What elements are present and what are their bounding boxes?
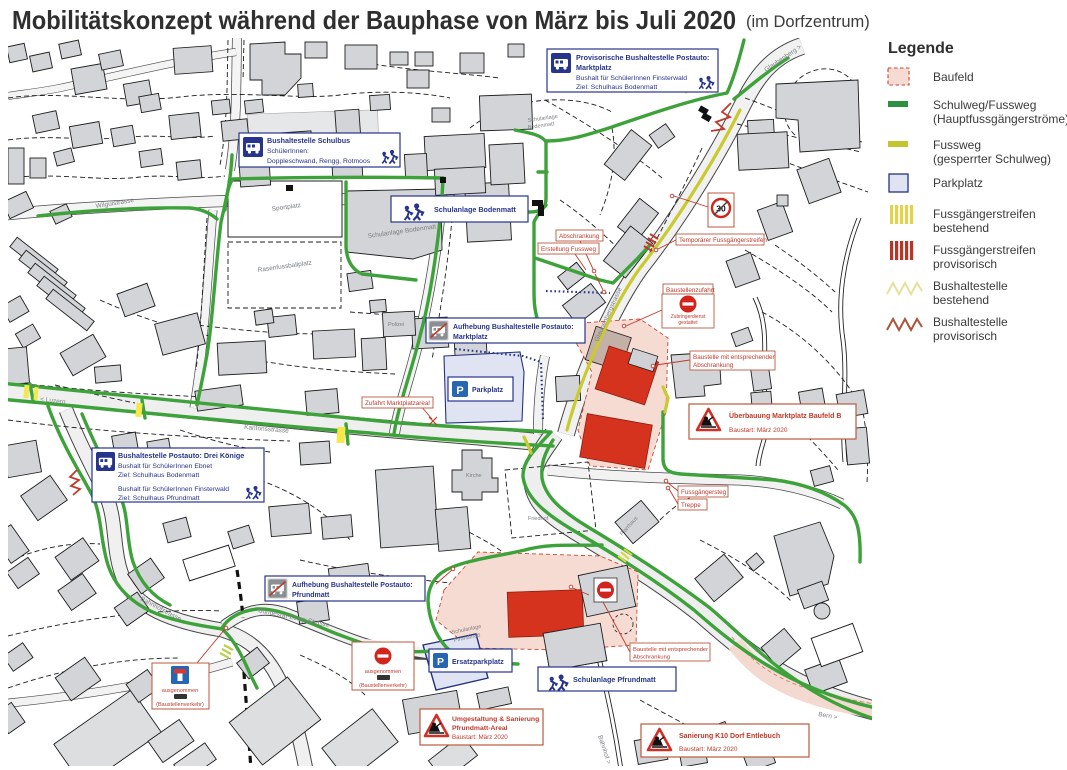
svg-text:Fussgängerstreifen: Fussgängerstreifen (933, 243, 1036, 257)
svg-text:Abschrankung: Abschrankung (633, 655, 670, 661)
svg-text:Schulweg/Fussweg: Schulweg/Fussweg (933, 98, 1036, 112)
svg-text:Ziel: Schulhaus Pfrundmatt: Ziel: Schulhaus Pfrundmatt (118, 495, 200, 502)
svg-text:Kirche: Kirche (466, 473, 482, 479)
svg-text:Pfrundmatt: Pfrundmatt (292, 592, 330, 599)
svg-text:Friedhof: Friedhof (528, 516, 549, 522)
svg-text:Ersatzparkplatz: Ersatzparkplatz (452, 659, 504, 666)
svg-text:Marktplatz: Marktplatz (576, 63, 612, 72)
svg-text:gestattet: gestattet (678, 320, 698, 326)
svg-text:ausgenommen: ausgenommen (365, 669, 401, 675)
svg-text:Erstellung Fussweg: Erstellung Fussweg (541, 246, 596, 253)
svg-text:(Baustellenverkehr): (Baustellenverkehr) (359, 683, 407, 689)
svg-text:SchülerInnen:: SchülerInnen: (267, 148, 309, 155)
svg-text:Fussgängerstreifen: Fussgängerstreifen (933, 207, 1036, 221)
svg-text:(Baustellenverkehr): (Baustellenverkehr) (156, 702, 204, 708)
svg-text:Bushaltestelle: Bushaltestelle (933, 279, 1008, 293)
svg-text:Fussweg: Fussweg (933, 138, 981, 152)
svg-text:Bushalt für SchülerInnen Finst: Bushalt für SchülerInnen Finsterwald (576, 75, 687, 82)
svg-text:Fussgängersteg: Fussgängersteg (681, 489, 727, 496)
svg-text:Umgestaltung & Sanierung: Umgestaltung & Sanierung (452, 716, 539, 723)
svg-text:Überbauung Marktplatz Baufeld: Überbauung Marktplatz Baufeld B (729, 411, 841, 420)
svg-text:Bushaltestelle Schulbus: Bushaltestelle Schulbus (267, 136, 350, 145)
svg-text:bestehend: bestehend (933, 221, 989, 235)
svg-text:Bushaltestelle Postauto: Drei: Bushaltestelle Postauto: Drei Könige (118, 451, 244, 460)
svg-text:Aufhebung Bushaltestelle Posta: Aufhebung Bushaltestelle Postauto: (292, 582, 413, 589)
svg-text:Sanierung K10 Dorf Entlebuch: Sanierung K10 Dorf Entlebuch (679, 733, 780, 740)
svg-text:Baustelle mit entsprechender: Baustelle mit entsprechender (693, 354, 775, 361)
svg-text:Parkplatz: Parkplatz (472, 387, 504, 394)
svg-text:Baustart: März 2020: Baustart: März 2020 (729, 427, 788, 434)
svg-text:P: P (456, 385, 463, 397)
svg-text:Parkplatz: Parkplatz (933, 176, 983, 190)
svg-text:Bushaltestelle: Bushaltestelle (933, 315, 1008, 329)
svg-text:(Hauptfussgängerströme): (Hauptfussgängerströme) (933, 112, 1067, 126)
svg-text:Legende: Legende (888, 40, 954, 57)
svg-text:Treppe: Treppe (681, 502, 701, 509)
svg-text:provisorisch: provisorisch (933, 329, 997, 343)
svg-text:Aufhebung Bushaltestelle Posta: Aufhebung Bushaltestelle Postauto: (453, 324, 574, 331)
svg-text:Ziel: Schulhaus Bodenmatt: Ziel: Schulhaus Bodenmatt (576, 84, 657, 91)
svg-text:Baustelle mit entsprechender: Baustelle mit entsprechender (633, 647, 708, 653)
svg-text:Zufahrt Marktplatzareal: Zufahrt Marktplatzareal (365, 400, 430, 407)
svg-text:P: P (437, 656, 444, 668)
svg-text:Baustart: März 2020: Baustart: März 2020 (452, 734, 508, 741)
svg-text:Marktplatz: Marktplatz (453, 334, 488, 341)
svg-text:Abschrankung: Abschrankung (559, 233, 600, 240)
svg-text:(gesperrter Schulweg): (gesperrter Schulweg) (933, 152, 1051, 166)
svg-text:Pfrundmatt-Areal: Pfrundmatt-Areal (452, 725, 508, 732)
svg-text:ausgenommen: ausgenommen (162, 688, 198, 694)
svg-text:provisorisch: provisorisch (933, 257, 997, 271)
svg-text:Doppleschwand, Rengg, Rotmoos: Doppleschwand, Rengg, Rotmoos (267, 158, 371, 165)
svg-text:Baustart: März 2020: Baustart: März 2020 (679, 746, 738, 753)
svg-text:Ziel: Schulhaus Bodenmatt: Ziel: Schulhaus Bodenmatt (118, 472, 199, 479)
svg-text:bestehend: bestehend (933, 293, 989, 307)
svg-text:(im Dorfzentrum): (im Dorfzentrum) (746, 13, 870, 31)
svg-text:Polizei: Polizei (388, 322, 404, 328)
svg-text:Baustellenzufahrt: Baustellenzufahrt (666, 287, 715, 294)
svg-text:Schulanlage Bodenmatt: Schulanlage Bodenmatt (434, 205, 516, 214)
svg-text:Bushalt für SchülerInnen Ebnet: Bushalt für SchülerInnen Ebnet (118, 463, 212, 470)
svg-text:Temporärer Fussgängerstreifen: Temporärer Fussgängerstreifen (679, 237, 767, 244)
svg-text:Provisorische Bushaltestelle P: Provisorische Bushaltestelle Postauto: (576, 53, 709, 62)
svg-text:Abschrankung: Abschrankung (693, 362, 734, 369)
svg-text:Schulanlage Pfrundmatt: Schulanlage Pfrundmatt (573, 675, 656, 684)
svg-text:Baufeld: Baufeld (933, 70, 974, 84)
svg-text:Mobilitätskonzept während der: Mobilitätskonzept während der Bauphase v… (12, 5, 736, 35)
svg-text:Bushalt für SchülerInnen Finst: Bushalt für SchülerInnen Finsterwald (118, 486, 229, 493)
